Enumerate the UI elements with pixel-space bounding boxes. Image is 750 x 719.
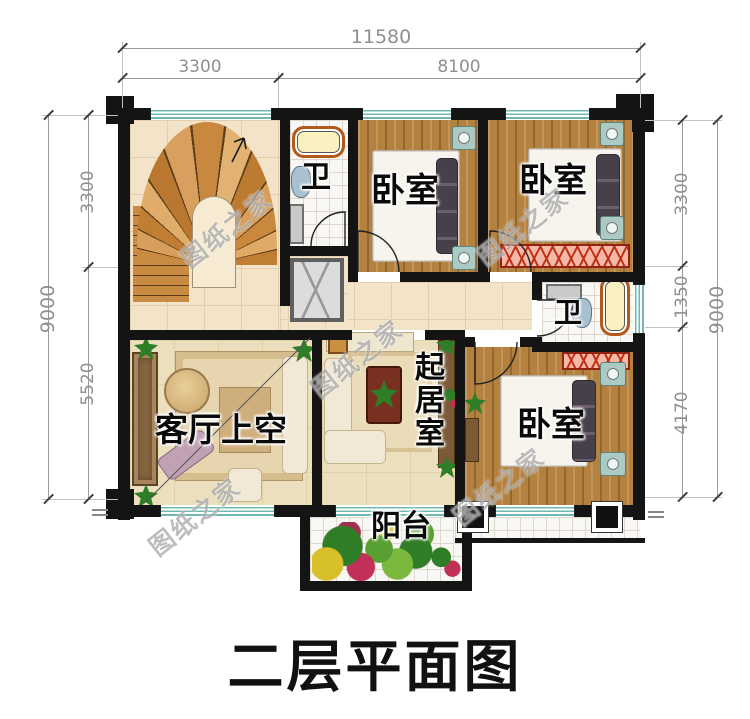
room-label-living-void: 客厅上空 xyxy=(146,408,296,446)
break-mark xyxy=(92,514,108,516)
extension-line xyxy=(42,499,118,500)
dim-top-seg1: 3300 xyxy=(170,57,230,77)
wall-hallway-south-a xyxy=(130,330,312,340)
dim-right-seg1: 3300 xyxy=(672,164,692,224)
washbasin-top xyxy=(289,204,304,244)
window-stairs xyxy=(150,108,272,120)
window-bath-mid xyxy=(633,284,645,334)
column-top-left xyxy=(106,96,134,124)
room-label-bedroom-bottom-right: 卧室 xyxy=(512,402,590,440)
window-bedroom2 xyxy=(505,108,590,120)
dim-left-seg1: 3300 xyxy=(78,162,98,222)
window-bedroom1 xyxy=(362,108,452,120)
dim-line-top-total xyxy=(122,48,640,49)
room-label-bedroom-top-center: 卧室 xyxy=(366,168,444,206)
break-mark xyxy=(648,511,664,513)
closet-cabinet xyxy=(290,258,344,322)
terrace-column-right xyxy=(592,502,622,532)
wall-stairs-bath xyxy=(280,120,290,306)
nightstand xyxy=(600,452,626,476)
nightstand xyxy=(600,122,624,146)
floor-plan-page: { "title": "二层平面图", "watermark": "图纸之家",… xyxy=(0,0,750,719)
column-top-right-b xyxy=(632,94,654,132)
wall-bath-bedroom1 xyxy=(348,120,358,282)
extension-line xyxy=(645,120,722,121)
sitting-sofa-horizontal xyxy=(324,430,386,464)
nightstand xyxy=(452,126,476,150)
extension-line xyxy=(42,115,118,116)
wall-bedroom3-north-b xyxy=(520,337,542,347)
wall-bath-top-south xyxy=(280,246,358,256)
dim-line-top-segments xyxy=(122,78,640,79)
wall-living-sitting xyxy=(312,330,322,517)
dim-left-seg2: 5520 xyxy=(78,354,98,414)
room-label-bath-mid: 卫 xyxy=(550,294,586,328)
room-label-balcony: 阳台 xyxy=(362,506,440,540)
wall-hallway-south-c xyxy=(425,330,455,340)
break-mark xyxy=(648,516,664,518)
break-mark xyxy=(92,509,108,511)
wall-hallway-north-b xyxy=(532,272,645,282)
dim-top-seg2: 8100 xyxy=(429,57,489,77)
dim-right-seg2: 1350 xyxy=(672,267,692,327)
dim-right-total: 9000 xyxy=(706,280,728,340)
wall-hallway-north-a xyxy=(400,272,490,282)
dim-top-total: 11580 xyxy=(341,26,421,48)
dim-right-seg3: 4170 xyxy=(672,383,692,443)
room-label-sitting-room: 起居室 xyxy=(407,346,445,454)
nightstand xyxy=(600,216,624,240)
bathtub-mid xyxy=(600,276,630,336)
column-bottom-left xyxy=(106,489,134,519)
wall-outer-left xyxy=(118,108,130,520)
small-dresser xyxy=(465,418,479,462)
plan-title: 二层平面图 xyxy=(180,622,570,703)
wall-hallway-south-b xyxy=(322,330,352,340)
wall-bath-mid-south xyxy=(532,342,645,352)
window-bedroom3 xyxy=(495,505,575,517)
wall-balcony-left xyxy=(300,517,310,589)
wall-balcony-bottom xyxy=(300,581,472,591)
dim-left-total: 9000 xyxy=(37,279,59,339)
extension-line xyxy=(645,497,722,498)
terrace-edge xyxy=(455,538,645,543)
wall-bath-mid-west-a xyxy=(532,282,542,300)
nightstand xyxy=(600,362,626,386)
balcony-flowers-right xyxy=(430,544,462,582)
room-label-bath-top: 卫 xyxy=(296,156,336,192)
